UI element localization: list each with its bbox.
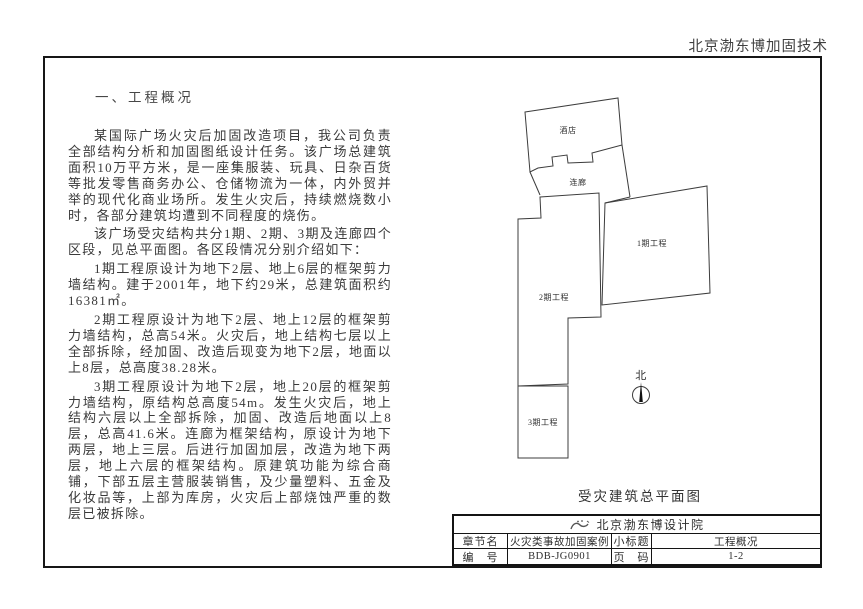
cell-chapter-label: 章节名 [454,534,508,549]
hotel-label: 酒店 [560,125,577,135]
cell-number-value: BDB-JG0901 [508,549,612,564]
site-plan-diagram: 酒店 连廊 1期工程 2期工程 3期工程 北 [480,95,830,480]
brand-header-text: 北京渤东博加固技术 [689,35,829,56]
phase2-outline [518,193,601,386]
paragraph-phase3: 3期工程原设计为地下2层，地上20层的框架剪力墙结构，原结构总高度54m。发生火… [68,379,392,522]
page-border-frame: 一、工程概况 某国际广场火灾后加固改造项目，我公司负责全部结构分析和加固图纸设计… [43,56,822,568]
cell-subtitle-label: 小标题 [612,534,652,549]
north-label: 北 [635,369,647,382]
design-institute-logo-icon [569,519,591,531]
north-arrow-icon: 北 [633,369,650,404]
corridor-right-line [622,145,630,197]
section-title: 一、工程概况 [95,86,194,106]
cell-page-label: 页 码 [612,549,652,564]
body-text-block: 某国际广场火灾后加固改造项目，我公司负责全部结构分析和加固图纸设计任务。该广场总… [68,128,392,525]
title-block-table: 北京渤东博设计院 章节名 火灾类事故加固案例 小标题 工程概况 编 号 BDB-… [452,514,822,566]
paragraph-phase1: 1期工程原设计为地下2层、地上6层的框架剪力墙结构。建于2001年，地下约29米… [68,261,392,309]
corridor-left-line [530,172,540,195]
phase3-label: 3期工程 [528,418,558,427]
phase1-label: 1期工程 [637,239,667,248]
document-page: 北京渤东博加固技术 一、工程概况 某国际广场火灾后加固改造项目，我公司负责全部结… [0,0,863,609]
cell-number-label: 编 号 [454,549,508,564]
institute-name: 北京渤东博设计院 [596,516,704,533]
paragraph-zones: 该广场受灾结构共分1期、2期、3期及连廊四个区段，见总平面图。各区段情况分别介绍… [68,226,392,258]
paragraph-phase2: 2期工程原设计为地下2层、地上12层的框架剪力墙结构，总高54米。火灾后，地上结… [68,312,392,376]
title-block-header-row: 北京渤东博设计院 [454,516,820,534]
corridor-label: 连廊 [570,177,587,187]
site-plan-caption: 受灾建筑总平面图 [525,485,755,505]
cell-subtitle-value: 工程概况 [652,534,820,549]
hotel-outline [525,98,622,172]
paragraph-overview: 某国际广场火灾后加固改造项目，我公司负责全部结构分析和加固图纸设计任务。该广场总… [68,128,392,223]
cell-chapter-value: 火灾类事故加固案例 [508,534,612,549]
cell-page-value: 1-2 [652,549,820,564]
phase2-label: 2期工程 [539,293,569,302]
